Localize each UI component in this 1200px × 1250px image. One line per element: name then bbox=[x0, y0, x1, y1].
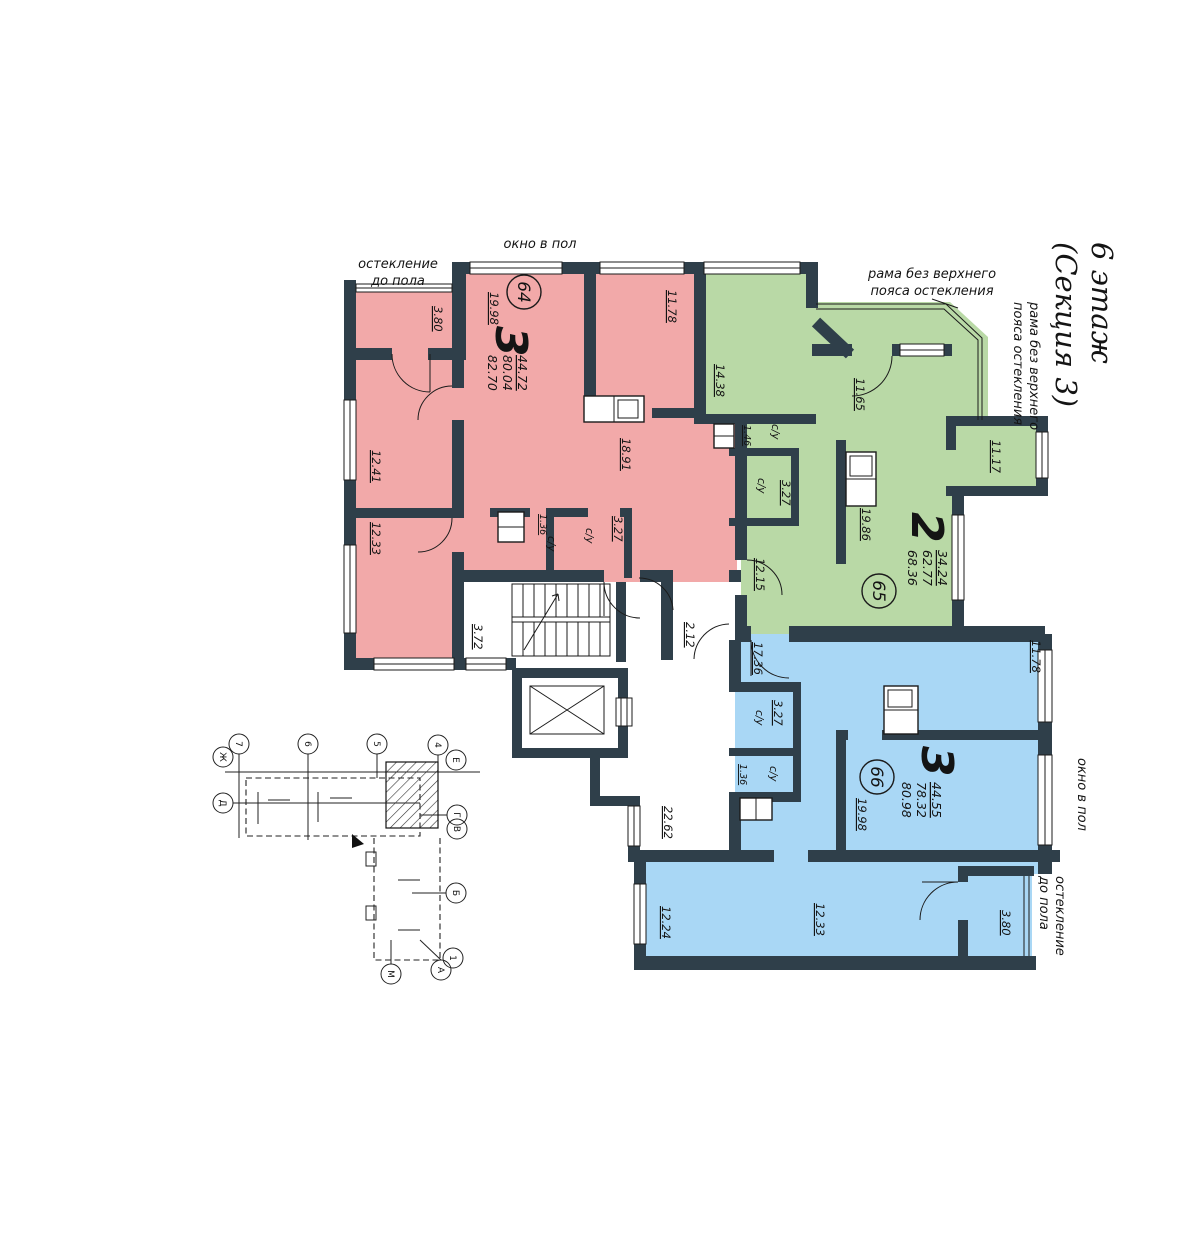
annotation-glazing-bottom-right: остекление до пола bbox=[1036, 875, 1067, 956]
svg-text:Г: Г bbox=[451, 812, 461, 818]
room-area-label: 1.36 bbox=[537, 514, 548, 535]
room-area-label: 11.17 bbox=[989, 440, 1003, 474]
apartment-64-area bbox=[346, 262, 737, 670]
annotation-frame-top: рама без верхнего bbox=[867, 267, 996, 282]
wc-label: с/у bbox=[769, 424, 781, 440]
room-area-label: 11.65 bbox=[853, 378, 867, 411]
svg-text:остекление: остекление bbox=[1052, 876, 1067, 956]
room-area-label: 3.80 bbox=[431, 306, 445, 332]
area-living: 44.72 bbox=[515, 355, 530, 391]
room-area-label: 12.41 bbox=[369, 450, 383, 483]
bath-fixture-icon bbox=[714, 424, 734, 448]
area: 78.32 bbox=[914, 782, 929, 818]
annotation-frame-right: рама без верхнего пояса остекления bbox=[1010, 301, 1041, 430]
axis-bubble: 7 bbox=[229, 734, 249, 754]
room-area-label: 11.78 bbox=[665, 290, 679, 323]
room-area-label: 12.33 bbox=[813, 903, 827, 936]
wc-label: с/у bbox=[767, 766, 779, 782]
kitchen-unit-icon bbox=[584, 396, 644, 422]
svg-text:4: 4 bbox=[432, 742, 442, 748]
axis-bubble: 1 bbox=[443, 948, 463, 968]
kitchen-unit-icon bbox=[884, 686, 918, 734]
axis-bubble: Б bbox=[446, 883, 466, 903]
rooms-count: 2 bbox=[901, 512, 952, 543]
annotation-window-full-right: окно в пол bbox=[1074, 758, 1089, 831]
room-area-label: 12.33 bbox=[369, 522, 383, 555]
svg-text:А: А bbox=[435, 967, 445, 974]
room-area-label: 11.78 bbox=[1029, 640, 1043, 673]
axis-bubble: 4 bbox=[428, 735, 448, 755]
area: 62.77 bbox=[920, 550, 935, 586]
area-total: 68.36 bbox=[905, 550, 920, 586]
kitchen-unit-icon bbox=[846, 452, 876, 506]
key-plan: 7 6 5 4 Е Ж Д Г В Б М А 1 bbox=[213, 734, 480, 984]
svg-text:окно в пол: окно в пол bbox=[1074, 758, 1089, 831]
area: 80.04 bbox=[500, 355, 515, 391]
svg-text:Ж: Ж bbox=[217, 752, 227, 762]
wc-label: с/у bbox=[583, 528, 595, 544]
room-area-label: 3.27 bbox=[611, 516, 625, 542]
room-area-label: 19.86 bbox=[859, 508, 873, 541]
annotation-frame-top: пояса остекления bbox=[870, 284, 993, 299]
annotation-glazing-top-left: до пола bbox=[370, 274, 425, 289]
axis-bubble: В bbox=[447, 819, 467, 839]
room-area-label: 1.36 bbox=[737, 764, 748, 785]
svg-text:В: В bbox=[451, 826, 461, 832]
svg-text:7: 7 bbox=[233, 741, 243, 747]
svg-text:Д: Д bbox=[217, 799, 227, 806]
drawing-title: 6 этаж (Секция 3) bbox=[1049, 242, 1119, 407]
floor-plan-drawing: 19.98 11.78 18.91 12.41 12.33 1.36 3.27 … bbox=[0, 0, 1200, 1250]
stairs-icon bbox=[512, 584, 610, 656]
room-area-label: 19.98 bbox=[855, 798, 869, 831]
apartment-number: 65 bbox=[868, 580, 888, 602]
current-section-marker bbox=[386, 762, 438, 828]
area-living: 34.24 bbox=[935, 550, 950, 586]
axis-bubble: Д bbox=[213, 793, 233, 813]
annotation-glazing-top-left: остекление bbox=[358, 257, 438, 272]
room-area-label: 12.15 bbox=[753, 558, 767, 591]
room-area-label: 3.27 bbox=[779, 480, 793, 506]
room-area-label: 19.98 bbox=[487, 292, 501, 325]
axis-bubble: Ж bbox=[213, 747, 233, 767]
axis-bubble: М bbox=[381, 964, 401, 984]
wc-label: с/у bbox=[755, 478, 767, 494]
room-area-label: 12.24 bbox=[659, 906, 673, 939]
svg-text:5: 5 bbox=[371, 741, 381, 747]
svg-text:Б: Б bbox=[450, 890, 460, 896]
room-area-label: 3.80 bbox=[999, 910, 1013, 936]
room-area-label: 2.12 bbox=[683, 622, 697, 648]
svg-text:6: 6 bbox=[302, 741, 312, 747]
room-area-label: 3.27 bbox=[771, 700, 785, 726]
apartment-number: 66 bbox=[866, 766, 886, 788]
room-area-label: 17.36 bbox=[751, 642, 765, 675]
svg-text:М: М bbox=[385, 970, 395, 978]
elevator-icon bbox=[530, 686, 632, 734]
title-section: (Секция 3) bbox=[1049, 242, 1083, 407]
axis-bubble: 5 bbox=[367, 734, 387, 754]
svg-text:до пола: до пола bbox=[1036, 875, 1051, 930]
svg-text:1: 1 bbox=[447, 955, 457, 961]
axis-bubble: А bbox=[431, 960, 451, 980]
room-area-label: 3.72 bbox=[471, 624, 485, 650]
room-area-label: 22.62 bbox=[661, 806, 675, 839]
annotation-window-full-top: окно в пол bbox=[504, 237, 577, 252]
bath-fixture-icon bbox=[498, 512, 524, 542]
area-living: 44.55 bbox=[929, 782, 944, 818]
axis-bubble: Е bbox=[446, 750, 466, 770]
axis-bubble: 6 bbox=[298, 734, 318, 754]
wc-label: с/у bbox=[753, 710, 765, 726]
apartment-number: 64 bbox=[513, 281, 533, 303]
bath-fixture-icon bbox=[740, 798, 772, 820]
rooms-count: 3 bbox=[911, 746, 962, 777]
room-area-label: 14.38 bbox=[713, 364, 727, 397]
title-floor: 6 этаж bbox=[1085, 242, 1119, 364]
svg-text:пояса остекления: пояса остекления bbox=[1010, 302, 1025, 425]
rooms-count: 3 bbox=[485, 326, 536, 357]
floor-plan-sheet: 19.98 11.78 18.91 12.41 12.33 1.36 3.27 … bbox=[0, 0, 1200, 1250]
area-total: 82.70 bbox=[485, 355, 500, 391]
wc-label: с/у bbox=[545, 536, 557, 552]
room-area-label: 18.91 bbox=[619, 438, 633, 471]
svg-text:Е: Е bbox=[450, 757, 460, 763]
room-area-label: 1.46 bbox=[741, 425, 752, 446]
svg-text:рама без верхнего: рама без верхнего bbox=[1026, 301, 1041, 430]
area-total: 80.98 bbox=[899, 782, 914, 818]
